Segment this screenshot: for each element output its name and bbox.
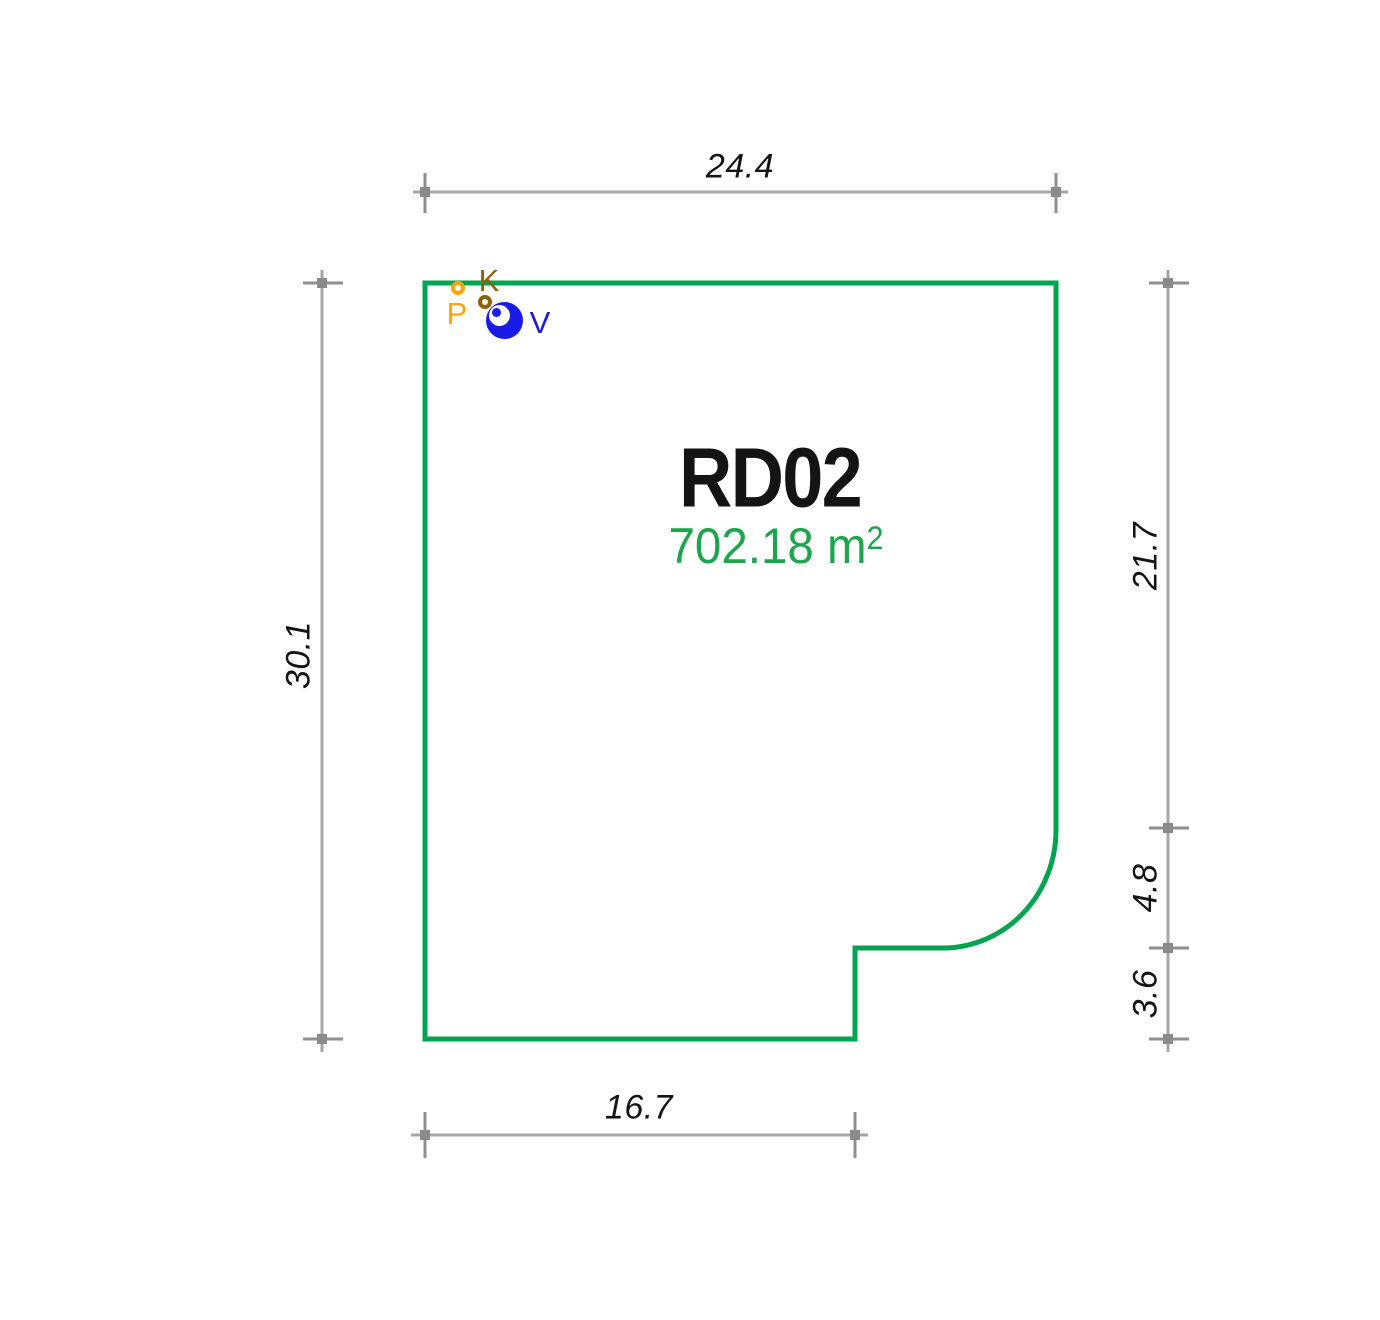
dim-left-label: 30.1 — [280, 621, 319, 689]
parcel-area: 702.18 m2 — [669, 517, 884, 575]
parcel-drawing-svg — [0, 0, 1380, 1320]
dim-bottom-label: 16.7 — [605, 1089, 673, 1128]
dim-right-linework — [1149, 270, 1189, 1052]
parcel-outline[interactable] — [425, 283, 1056, 1039]
parcel-area-value: 702.18 m — [669, 518, 867, 574]
marker-p-label: P — [447, 296, 468, 332]
dim-right-lower-label: 3.6 — [1127, 970, 1166, 1019]
dim-right-upper-label: 21.7 — [1127, 522, 1166, 590]
marker-v-label: V — [530, 305, 551, 341]
parcel-area-exponent: 2 — [867, 520, 884, 556]
point-marker-p-icon[interactable] — [451, 281, 465, 295]
valve-inner-dot — [492, 308, 501, 317]
dim-top-label: 24.4 — [706, 148, 774, 187]
drawing-canvas: 24.4 30.1 21.7 4.8 3.6 16.7 RD02 702.18 … — [0, 0, 1380, 1320]
valve-marker-v-icon[interactable] — [486, 302, 523, 339]
marker-k-label: K — [479, 263, 500, 299]
dim-right-middle-label: 4.8 — [1127, 864, 1166, 913]
parcel-id: RD02 — [679, 430, 861, 527]
